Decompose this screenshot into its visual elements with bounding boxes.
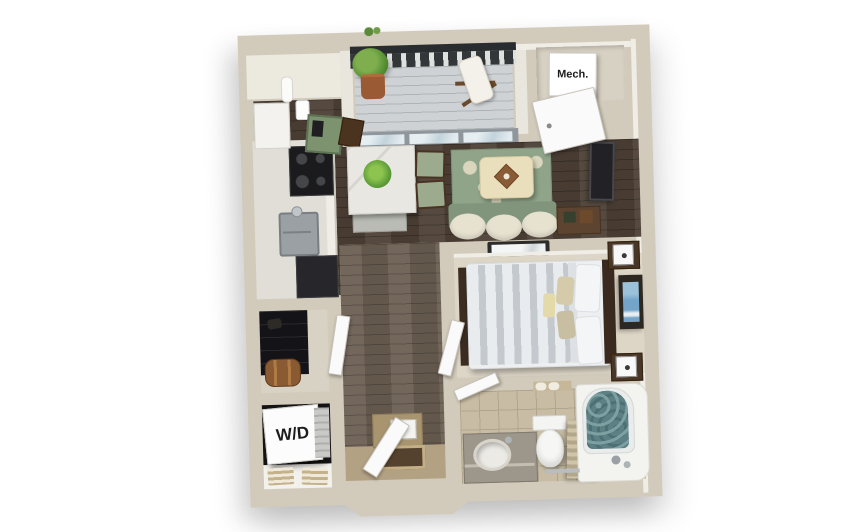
sliding-door-pane bbox=[409, 133, 458, 144]
floorplan-canvas: Mech. bbox=[0, 0, 868, 532]
wall-mounted-tv bbox=[589, 142, 615, 201]
rolled-towel bbox=[548, 382, 559, 390]
entry-door-knob bbox=[546, 123, 552, 129]
toilet-bowl bbox=[536, 429, 565, 468]
wall-art-frame bbox=[618, 275, 643, 330]
paper-towel-holder bbox=[281, 76, 294, 102]
decor-box-green bbox=[564, 211, 576, 222]
bed-pillow bbox=[574, 264, 602, 313]
bed-duvet bbox=[468, 263, 571, 366]
rolled-towel bbox=[535, 382, 546, 390]
wall-art-print bbox=[623, 282, 640, 322]
coffee-maker bbox=[312, 120, 324, 137]
lumbar-pillow bbox=[543, 293, 556, 317]
kitchen-sink bbox=[278, 212, 319, 257]
storage-basket bbox=[265, 358, 302, 387]
table-lamp bbox=[616, 356, 638, 378]
towel-shelf bbox=[533, 381, 571, 392]
kitchen-upper-wall bbox=[246, 53, 341, 100]
bed-pillow bbox=[574, 315, 604, 365]
shower-curtain bbox=[586, 390, 630, 449]
sliding-door-pane bbox=[463, 131, 512, 142]
towel-stack bbox=[302, 468, 328, 486]
decor-box-brown bbox=[579, 210, 592, 223]
table-lamp bbox=[612, 244, 634, 266]
refrigerator bbox=[253, 102, 290, 149]
sliding-door-pane bbox=[355, 134, 404, 145]
dishwasher bbox=[296, 255, 339, 298]
dining-chair bbox=[415, 180, 447, 210]
parapet-plant-sprig bbox=[363, 27, 381, 36]
towel-stack bbox=[267, 467, 294, 486]
washer-dryer-label: W/D bbox=[275, 423, 310, 446]
tray-dish bbox=[502, 172, 510, 180]
plant-pot bbox=[361, 74, 386, 100]
dining-chair bbox=[415, 150, 446, 179]
accent-pillow bbox=[556, 276, 575, 305]
patio-chair-cushion bbox=[457, 54, 495, 105]
sink-divider bbox=[283, 231, 311, 234]
appliance-side-panel bbox=[314, 407, 330, 457]
console-table bbox=[556, 206, 601, 235]
accent-pillow bbox=[556, 310, 576, 340]
apartment-floorplan: Mech. bbox=[0, 0, 868, 532]
mech-label: Mech. bbox=[557, 68, 588, 80]
